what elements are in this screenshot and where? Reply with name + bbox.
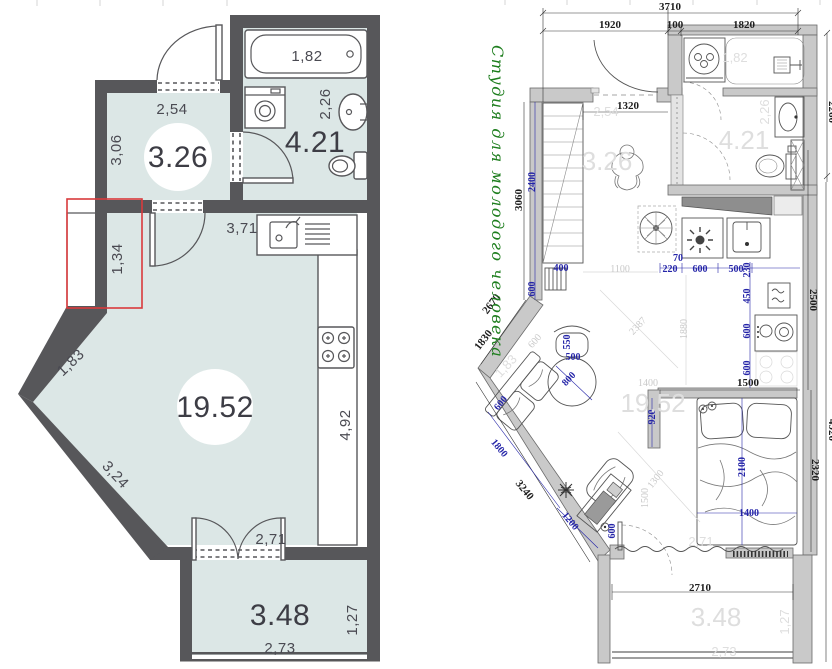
washing-machine-icon — [684, 38, 725, 82]
furniture-dimension-label: 1800 — [488, 437, 509, 459]
cooker-fan-icon — [682, 218, 723, 258]
kitchen-sink-icon — [727, 218, 770, 258]
bathroom-sink-icon — [775, 97, 804, 137]
cad-dimension-label: 4920 — [826, 419, 832, 442]
ventilation-shaft-icon — [791, 140, 804, 190]
furniture-dimension-label: 70 — [673, 253, 683, 264]
stove-icon — [755, 315, 797, 386]
furniture-dimension-label: 600 — [693, 264, 708, 275]
room-dimension-label: 3.26 — [148, 141, 208, 174]
wardrobe-icon — [543, 103, 583, 263]
faded-dimension-label: 2387 — [627, 315, 649, 337]
fan-wheel-icon — [638, 206, 676, 252]
cad-dimension-label: 1920 — [599, 19, 622, 31]
faded-dimension-label: 1880 — [679, 319, 690, 339]
cad-dimension-label: 3060 — [513, 189, 525, 212]
underlay-room-label: 1,27 — [777, 609, 792, 634]
bathroom-sink-icon — [339, 94, 367, 130]
plant-icon — [558, 482, 574, 498]
underlay-room-label: 19.52 — [620, 388, 685, 418]
furniture-dimension-label: 220 — [663, 264, 678, 275]
cad-dimension-label: 1820 — [733, 19, 756, 31]
room-dimension-label: 4,92 — [337, 409, 354, 440]
furniture-dimension-label: 230 — [742, 263, 753, 278]
room-dimension-label: 2,73 — [264, 640, 295, 657]
room-dimension-label: 3,71 — [226, 220, 257, 237]
furniture-dimension-label: 400 — [554, 263, 569, 274]
furniture-dimension-label: 2100 — [737, 457, 748, 477]
room-dimension-label: 3.48 — [250, 599, 310, 632]
cad-dimension-label: 1320 — [617, 100, 640, 112]
room-dimension-label: 4.21 — [285, 126, 345, 159]
underlay-room-label: 2,26 — [757, 99, 772, 124]
floor-plan-drawing: 1,822,264.212,543,063.261,343,711,8319.5… — [0, 0, 832, 669]
underlay-room-label: 3.26 — [582, 146, 633, 176]
niche-outline — [67, 213, 95, 306]
cad-dimension-label: 2710 — [689, 582, 712, 594]
plan-title: Студия для молодого человека — [488, 45, 507, 358]
room-dimension-label: 3,06 — [108, 134, 125, 165]
underlay-room-label: 1,82 — [722, 50, 747, 65]
left-floor-plan: 1,822,264.212,543,063.261,343,711,8319.5… — [18, 0, 380, 662]
furniture-dimension-label: 800 — [560, 370, 578, 388]
room-dimension-label: 2,71 — [255, 531, 286, 548]
room-dimension-label: 19.52 — [176, 391, 254, 424]
underlay-room-label: 2,71 — [688, 534, 713, 549]
underlay-room-label: 2,54 — [593, 104, 618, 119]
furniture-dimension-label: 450 — [742, 289, 753, 304]
cad-dimension-label: 3710 — [659, 1, 682, 13]
cad-dimension-label: 2500 — [807, 289, 819, 312]
dimension-lines-black — [476, 8, 830, 662]
cad-dimension-label: 2260 — [826, 101, 832, 124]
right-floor-plan: 3710192010018202260132030602670183032402… — [472, 0, 832, 663]
cad-dimension-label: 1500 — [737, 377, 760, 389]
faded-dimension-label: 1500 — [640, 488, 651, 508]
furniture-dimension-label: 1400 — [739, 508, 759, 519]
room-dimension-label: 2,26 — [317, 88, 334, 119]
plan-title-group: Студия для молодого человека — [488, 45, 507, 358]
furniture-dimension-label: 600 — [527, 282, 538, 297]
underlay-room-label: 2,73 — [711, 644, 736, 659]
furniture-dimension-label: 600 — [742, 324, 753, 339]
cad-dimension-label: 100 — [667, 19, 684, 31]
underlay-room-label: 3.48 — [691, 602, 742, 632]
washing-machine-icon — [245, 87, 285, 128]
cad-dimension-label: 2320 — [809, 459, 821, 482]
furniture-dimension-label: 2400 — [527, 172, 538, 192]
room-dimension-label: 1,27 — [344, 604, 361, 635]
faded-dimension-label: 1300 — [646, 468, 667, 491]
underlay-room-label: 4.21 — [719, 125, 770, 155]
room-dimension-label: 2,54 — [156, 101, 187, 118]
furniture-dimension-label: 600 — [742, 361, 753, 376]
stove-icon — [318, 327, 354, 368]
room-dimension-label: 1,82 — [291, 48, 322, 65]
furniture-dimension-label: 500 — [566, 352, 581, 363]
room-dimension-label: 1,34 — [109, 243, 126, 274]
kettle-icon — [768, 283, 790, 308]
furniture-dimension-label: 550 — [562, 335, 573, 350]
cad-doors — [591, 40, 730, 575]
kitchen-counter-dark — [682, 196, 802, 215]
faded-dimension-label: 600 — [526, 332, 544, 351]
furniture-dimension-label: 600 — [607, 524, 618, 539]
floor-plan-canvas: 1,822,264.212,543,063.261,343,711,8319.5… — [0, 0, 832, 669]
faded-dimension-label: 1100 — [610, 264, 630, 275]
cad-dimension-label: 3240 — [513, 478, 536, 503]
clipped-ruler-ticks — [37, 0, 227, 6]
